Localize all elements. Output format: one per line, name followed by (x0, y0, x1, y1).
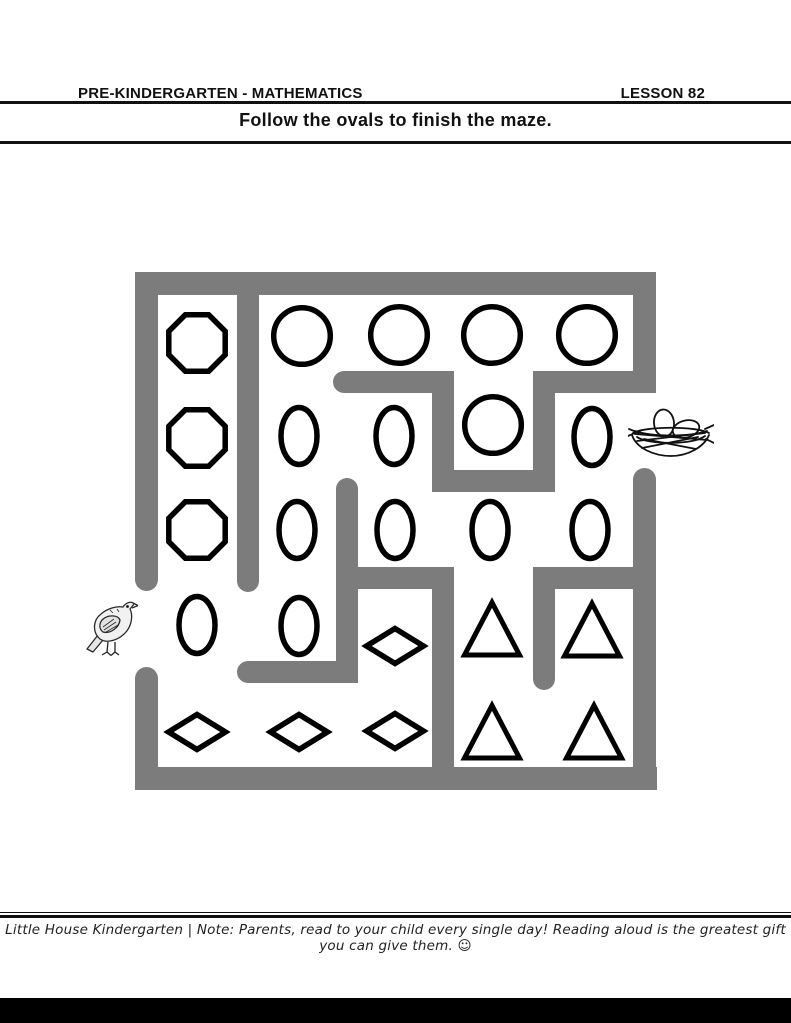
maze-wall (633, 468, 656, 790)
footer-divider-thick (0, 915, 791, 918)
nest-with-eggs-end-icon (628, 406, 714, 460)
footer-note: Little House Kindergarten | Note: Parent… (0, 922, 791, 954)
bottom-page-bar (0, 998, 791, 1023)
maze-shape-diamond (263, 696, 335, 768)
maze-wall (432, 567, 454, 790)
maze-shape-circle (457, 389, 529, 461)
worksheet-page: PRE-KINDERGARTEN - MATHEMATICS LESSON 82… (0, 0, 791, 1023)
maze-shape-oval (263, 590, 335, 662)
maze-shape-oval (556, 401, 628, 473)
maze-wall (237, 661, 358, 683)
maze-shape-circle (551, 299, 623, 371)
maze-shape-octagon (161, 494, 233, 566)
maze-shape-diamond (161, 696, 233, 768)
footer-divider-thin (0, 912, 791, 913)
maze-shape-diamond (359, 610, 431, 682)
maze-shape-triangle (456, 697, 528, 769)
maze-shape-circle (266, 300, 338, 372)
maze-wall (533, 371, 656, 393)
maze-shape-oval (161, 589, 233, 661)
maze-shape-oval (554, 494, 626, 566)
maze (0, 0, 791, 1023)
bird-start-icon (86, 594, 138, 658)
maze-shape-octagon (161, 402, 233, 474)
maze-wall (135, 767, 657, 790)
maze-shape-triangle (556, 595, 628, 667)
maze-shape-oval (263, 400, 335, 472)
maze-wall (135, 272, 158, 591)
maze-shape-octagon (161, 307, 233, 379)
maze-shape-oval (261, 494, 333, 566)
maze-shape-oval (358, 400, 430, 472)
maze-wall (533, 567, 555, 690)
maze-shape-circle (456, 299, 528, 371)
maze-shape-triangle (558, 697, 630, 769)
maze-wall (237, 272, 259, 592)
maze-shape-triangle (456, 594, 528, 666)
maze-shape-diamond (359, 695, 431, 767)
maze-shape-circle (363, 299, 435, 371)
maze-wall (135, 272, 656, 295)
maze-shape-oval (454, 494, 526, 566)
maze-shape-oval (359, 494, 431, 566)
